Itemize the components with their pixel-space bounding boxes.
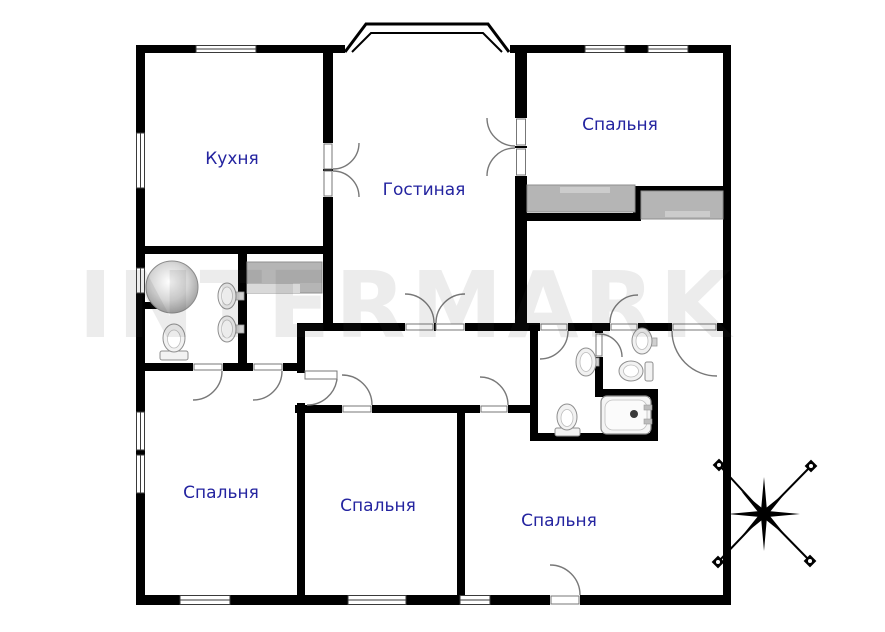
livbed-door-arc-1 <box>487 118 515 146</box>
living-doorleaf-2 <box>436 324 464 330</box>
window-bathroom-left <box>137 268 145 293</box>
bedroombr-doorleaf <box>481 406 507 412</box>
bath1-doorleaf <box>194 364 222 370</box>
bathtub-tap-icon <box>644 419 652 424</box>
closet-door-arc <box>253 371 282 400</box>
label-bedroom-bottom-left: Спальня <box>183 483 259 503</box>
window-bedroombr-bottom <box>460 596 490 605</box>
window-bedroombl-left-2 <box>137 455 145 493</box>
label-bedroom-bottom-middle: Спальня <box>340 496 416 516</box>
kitchen-door-arc-2 <box>333 171 359 197</box>
wc-fixtures <box>619 328 657 381</box>
living-door-arc-2 <box>436 294 465 323</box>
window-kitchen-left <box>137 133 145 188</box>
wardrobes <box>247 185 723 293</box>
bathtub-drain-icon <box>630 410 638 418</box>
livbed-door-arc-2 <box>487 148 515 176</box>
window-bedroomtr-top-2 <box>648 46 688 53</box>
label-bedroom-bottom-right: Спальня <box>521 511 597 531</box>
floorplan-page: Кухня Гостиная Спальня Спальня Спальня С… <box>0 0 885 632</box>
kitchen-door-arc-1 <box>333 143 359 169</box>
sink-icon <box>632 328 657 354</box>
hall-doorleaf <box>611 324 637 330</box>
window-bedroomtr-top-1 <box>585 46 625 53</box>
hall-door-arc <box>610 295 638 323</box>
window-bedroombl-bottom <box>180 596 230 605</box>
wardrobe-bedroom-tr <box>527 185 635 212</box>
bedroombm-door-arc <box>342 375 372 405</box>
label-bedroom-top-right: Спальня <box>582 115 658 135</box>
floorplan-drawing: Кухня Гостиная Спальня Спальня Спальня С… <box>0 0 885 632</box>
balcony-doorleaf <box>551 596 579 604</box>
living-doorleaf-1 <box>406 324 433 330</box>
window-bedroombm-bottom <box>348 596 406 605</box>
window-kitchen-top <box>196 46 256 53</box>
alcove-doorleaf <box>673 324 716 330</box>
bedroombm-doorleaf <box>343 406 371 412</box>
label-living-room: Гостиная <box>383 180 466 200</box>
bedroombr-door-arc <box>480 377 508 405</box>
window-bedroombl-left-1 <box>137 412 145 450</box>
bath1-door-arc <box>193 371 222 400</box>
balcony-door-arc <box>550 565 580 595</box>
bathtub-tap-icon <box>644 405 652 410</box>
alcove-door-arc <box>672 331 717 376</box>
closet-doorleaf <box>254 364 282 370</box>
toilet-icon <box>619 361 653 381</box>
toilet-icon <box>160 324 188 360</box>
shower-icon <box>146 261 198 313</box>
bathtub-icon <box>601 396 652 434</box>
livbed-doorleaf-1 <box>517 119 526 145</box>
bathroom-1-fixtures <box>146 261 244 360</box>
bath2-doorleaf <box>541 324 567 330</box>
kitchen-doorleaf-1 <box>324 144 332 169</box>
bedroombl-entry-leaf <box>305 371 337 379</box>
bay-window <box>345 24 509 53</box>
livbed-doorleaf-2 <box>517 149 526 175</box>
toilet-icon <box>555 404 580 436</box>
wardrobe-closet <box>247 262 322 293</box>
kitchen-doorleaf-2 <box>324 171 332 196</box>
bedroombl-entry-arc <box>307 379 337 405</box>
wc-doorleaf <box>596 334 602 356</box>
wardrobe-hall <box>641 191 723 219</box>
label-kitchen: Кухня <box>205 149 259 169</box>
living-door-arc-1 <box>405 294 434 323</box>
bath2-door-arc <box>540 331 568 359</box>
